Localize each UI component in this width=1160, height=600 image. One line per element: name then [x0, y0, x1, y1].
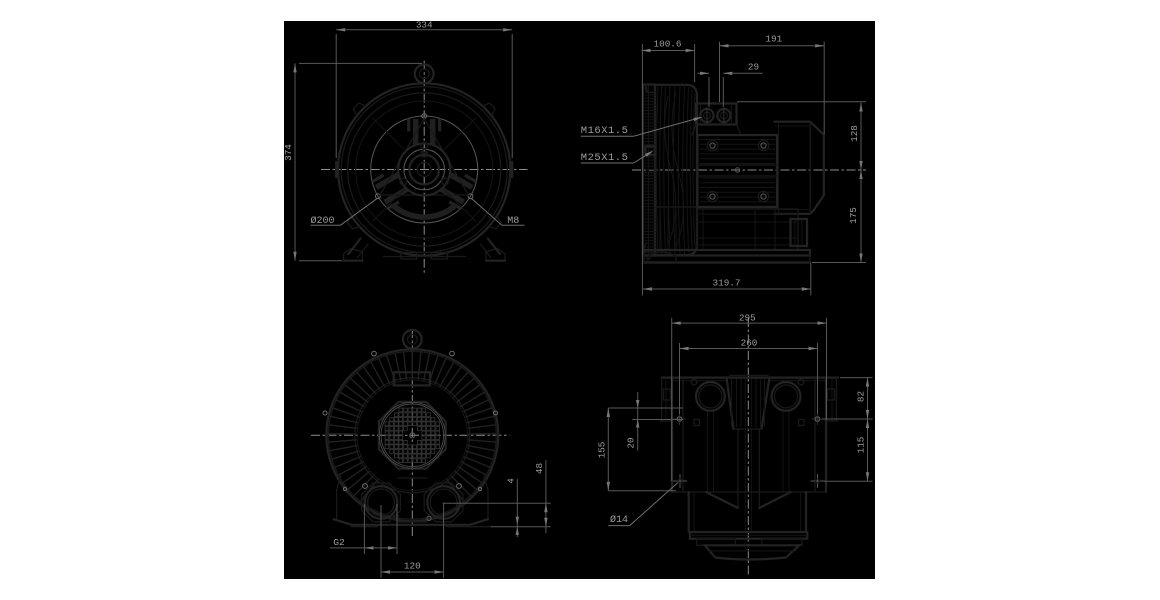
svg-text:Ø14: Ø14: [610, 514, 628, 526]
svg-text:374: 374: [283, 144, 294, 161]
svg-text:100.6: 100.6: [654, 38, 682, 49]
svg-text:20: 20: [626, 437, 637, 448]
svg-text:120: 120: [404, 560, 421, 571]
svg-text:128: 128: [849, 125, 860, 142]
svg-text:82: 82: [856, 391, 867, 402]
svg-text:334: 334: [416, 20, 433, 31]
svg-text:191: 191: [765, 34, 782, 45]
svg-text:319.7: 319.7: [713, 277, 741, 288]
svg-text:29: 29: [748, 61, 759, 72]
svg-text:4: 4: [505, 478, 516, 484]
svg-text:260: 260: [741, 338, 758, 349]
svg-text:M16X1.5: M16X1.5: [581, 125, 629, 137]
svg-text:295: 295: [739, 312, 756, 323]
svg-text:M25X1.5: M25X1.5: [581, 152, 629, 164]
svg-text:115: 115: [856, 437, 867, 454]
svg-text:155: 155: [596, 442, 607, 459]
svg-text:48: 48: [534, 463, 545, 474]
svg-text:G2: G2: [333, 537, 345, 548]
svg-text:175: 175: [848, 207, 859, 224]
